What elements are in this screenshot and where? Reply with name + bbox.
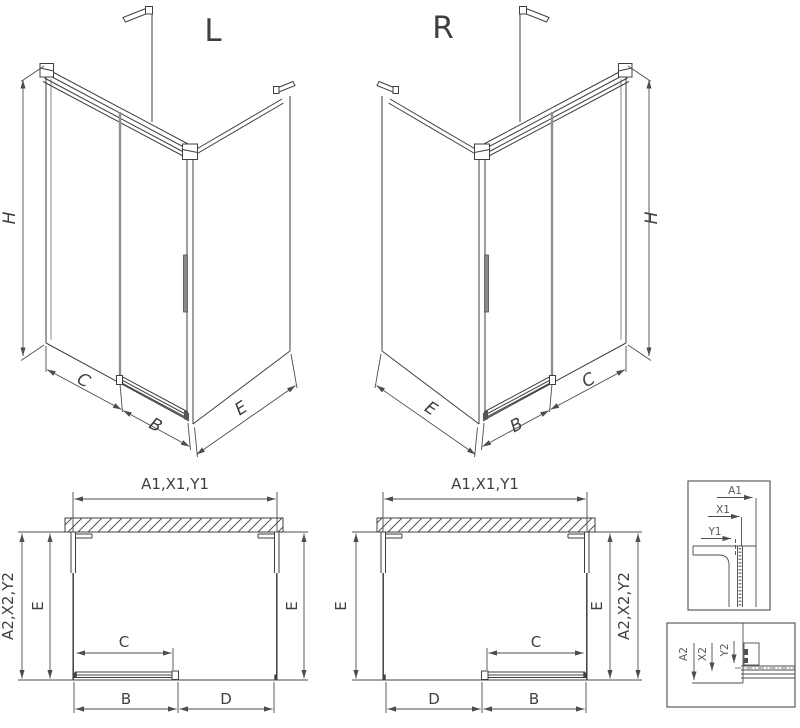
- wall-profile-right: [258, 532, 279, 573]
- dim-label-side-right: E: [283, 601, 301, 610]
- dim-label-width: A1,X1,Y1: [451, 475, 519, 493]
- detail-bottom-rail-box: A2 X2 Y2: [667, 623, 795, 707]
- detail-dim-x2: X2: [697, 647, 709, 661]
- detail-dim-y2: Y2: [719, 643, 731, 657]
- dim-label-door: B: [529, 690, 539, 708]
- wall-profile-left: [71, 532, 92, 573]
- dim-label-door: B: [145, 414, 165, 437]
- dim-label-side: E: [231, 397, 251, 420]
- detail-dim-x1: X1: [716, 504, 730, 516]
- detail-dim-y1: Y1: [707, 526, 721, 538]
- wall-hatch: [65, 518, 283, 532]
- wall-profile-section: [693, 546, 756, 607]
- plan-enclosure: [71, 532, 279, 680]
- dim-label-side-left: E: [29, 601, 47, 610]
- plan-view-right: A1,X1,Y1 E E A2,X2,Y2 C D B: [330, 470, 660, 728]
- dim-label-opening: C: [531, 633, 541, 651]
- dim-label-height: H: [0, 211, 20, 224]
- dim-label-fixed: C: [73, 369, 93, 392]
- dim-label-side: E: [421, 397, 441, 420]
- iso-view-right: R H E B C: [337, 0, 672, 465]
- dim-label-side-right: E: [588, 601, 606, 610]
- ceiling-bracket-cap: [146, 7, 153, 15]
- detail-dim-a2: A2: [678, 647, 690, 661]
- dim-label-depth-outer: A2,X2,Y2: [615, 572, 633, 640]
- plan-view-left: A1,X1,Y1 A2,X2,Y2 E E C B D: [0, 470, 330, 728]
- dim-label-door: B: [121, 690, 131, 708]
- dim-label-opening: C: [119, 633, 129, 651]
- detail-dim-a1: A1: [728, 485, 742, 497]
- dim-label-fixed: D: [428, 690, 440, 708]
- side-panel: [193, 96, 290, 424]
- wall-hatch: [377, 518, 595, 532]
- iso-view-left: L H C B E: [0, 0, 335, 465]
- detail-wall-profile-box: A1 X1 Y1: [688, 481, 770, 610]
- wall-bracket: [277, 82, 295, 93]
- dim-label-fixed: D: [220, 690, 232, 708]
- iso-right-title: R: [432, 10, 454, 46]
- wall-bracket-cap: [274, 87, 280, 94]
- enclosure-geometry: [40, 7, 295, 425]
- dim-label-side-left: E: [332, 601, 350, 610]
- dim-label-height: H: [642, 211, 662, 224]
- dim-label-door: B: [507, 414, 527, 437]
- dim-label-fixed: C: [579, 369, 599, 392]
- door-handle: [184, 255, 188, 312]
- top-rail: [43, 70, 190, 157]
- dim-label-depth-outer: A2,X2,Y2: [0, 572, 17, 640]
- iso-dimension-lines: [21, 66, 297, 457]
- dim-label-width: A1,X1,Y1: [141, 475, 209, 493]
- door-track: [74, 671, 278, 680]
- detail-views: A1 X1 Y1 A2 X2 Y2: [660, 455, 800, 728]
- technical-drawing-page: L H C B E R H E B C: [0, 0, 800, 728]
- iso-left-title: L: [204, 13, 222, 49]
